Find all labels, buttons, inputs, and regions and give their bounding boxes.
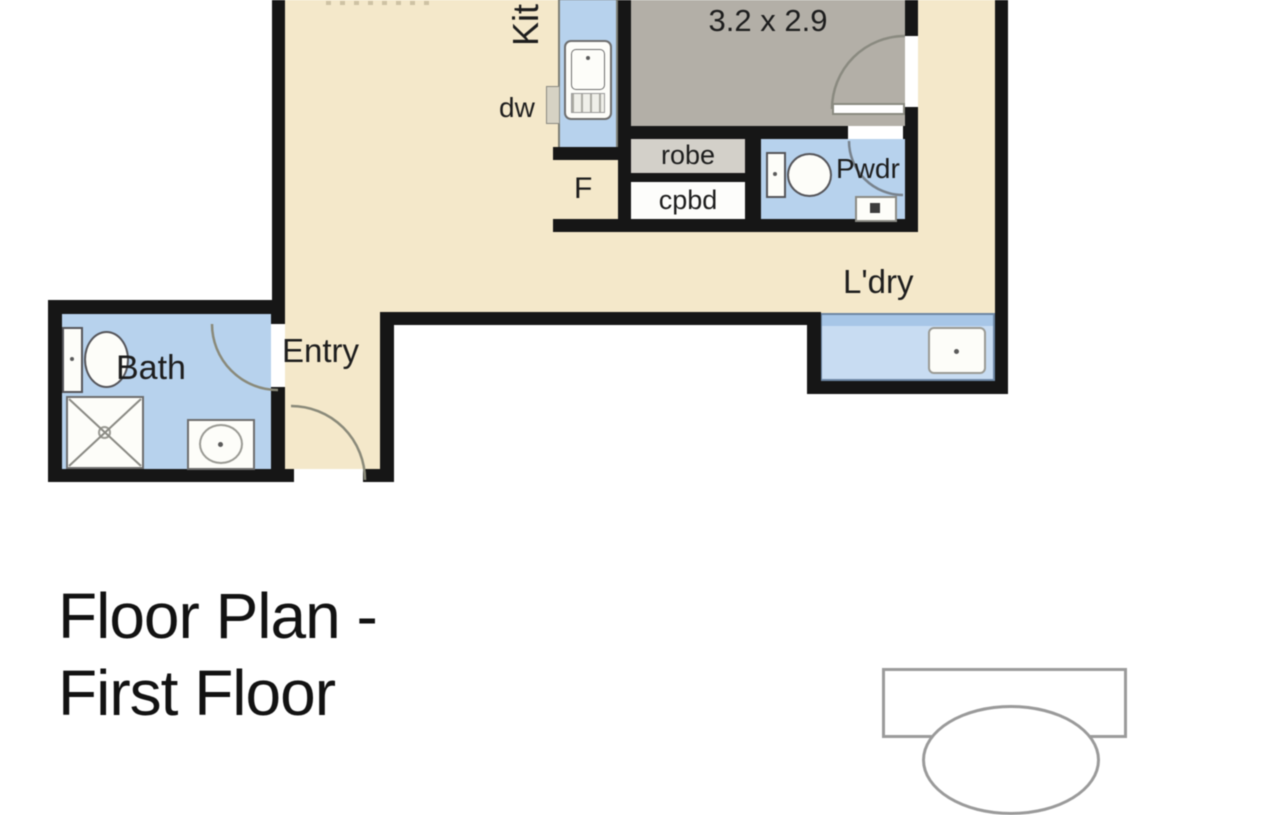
wall xyxy=(271,387,285,482)
laundry-sink-drain-icon xyxy=(954,349,959,354)
bath-label: Bath xyxy=(116,350,186,387)
wall xyxy=(618,0,631,232)
kitchen-label: Kit xyxy=(506,4,546,46)
wall xyxy=(271,300,285,324)
powder-basin-drain-icon xyxy=(870,203,880,213)
cupboard-label: cpbd xyxy=(631,186,745,216)
dishwasher-label: dw xyxy=(499,93,535,124)
plan-caption: Floor Plan - First Floor xyxy=(58,578,377,732)
bath-toilet-button-icon xyxy=(70,357,74,361)
laundry-counter-edge xyxy=(822,315,993,326)
bedroom-dimensions-label: 3.2 x 2.9 xyxy=(631,4,905,38)
robe-label: robe xyxy=(631,141,745,171)
wall xyxy=(995,0,1008,394)
kitchen-tap-icon xyxy=(586,56,590,60)
east-corridor-floor xyxy=(918,0,995,232)
shower-drain-icon xyxy=(98,426,111,439)
vanity-drain-icon xyxy=(218,442,223,447)
fridge-label: F xyxy=(574,172,592,205)
wall xyxy=(272,0,285,313)
logo-emblem-icon xyxy=(922,705,1100,815)
laundry-label: L'dry xyxy=(843,264,914,300)
bedroom-door-leaf xyxy=(832,103,905,115)
wall xyxy=(48,300,285,314)
wall xyxy=(807,381,1008,394)
powder-toilet-bowl-icon xyxy=(787,153,832,197)
wall xyxy=(905,126,918,232)
wall xyxy=(553,147,631,160)
wall xyxy=(618,173,760,182)
caption-line-2: First Floor xyxy=(58,655,377,732)
caption-line-1: Floor Plan - xyxy=(58,578,377,655)
wall xyxy=(48,300,62,482)
powder-toilet-button-icon xyxy=(773,172,777,176)
cropped-text-artifact xyxy=(326,1,434,5)
dishwasher-icon xyxy=(546,86,560,124)
powder-label: Pwdr xyxy=(836,154,900,185)
wall xyxy=(905,0,918,36)
wall xyxy=(745,126,761,232)
entry-label: Entry xyxy=(282,333,359,369)
wall xyxy=(48,469,294,482)
wall xyxy=(618,126,848,139)
kitchen-sink-drainer-icon xyxy=(571,93,605,113)
wall xyxy=(380,312,820,325)
wall xyxy=(380,312,394,482)
floor-plan-scene: Kit dw F 3.2 x 2.9 robe cpbd Pwdr L'dry … xyxy=(0,0,1280,720)
south-hall-floor xyxy=(618,232,995,313)
wall xyxy=(905,107,918,126)
